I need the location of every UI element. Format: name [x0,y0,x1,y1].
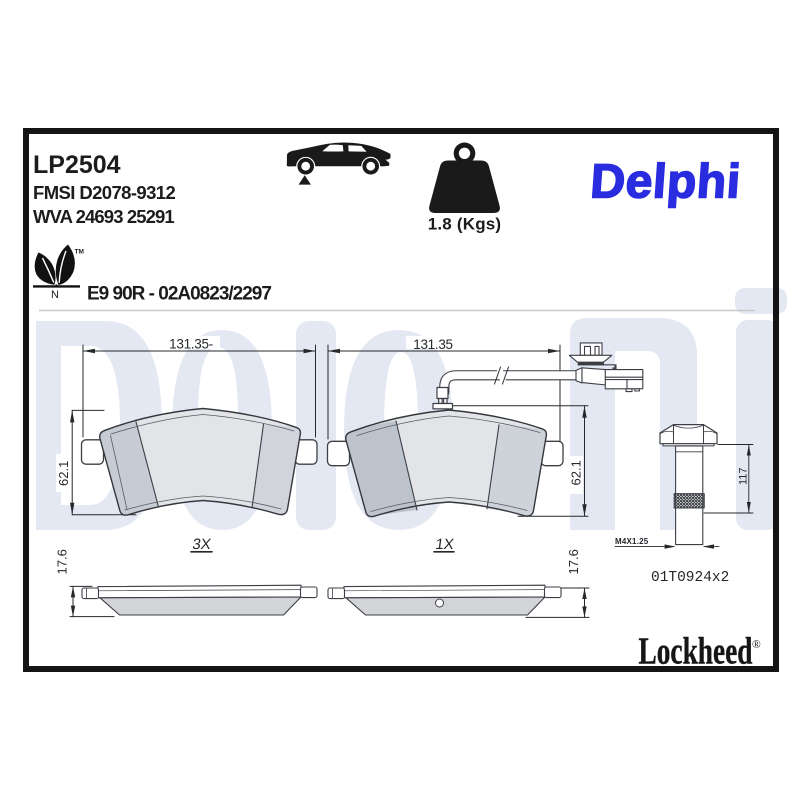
svg-text:3X: 3X [191,536,212,553]
svg-text:62.1: 62.1 [569,460,584,485]
svg-text:®: ® [752,639,761,651]
svg-text:1X: 1X [434,536,455,553]
svg-text:17.6: 17.6 [566,549,581,574]
svg-text:LP2504: LP2504 [33,151,121,179]
svg-text:M4X1.25: M4X1.25 [615,537,649,546]
svg-text:1.8 (Kgs): 1.8 (Kgs) [428,215,502,234]
svg-text:131.35: 131.35 [413,337,453,352]
svg-text:N: N [51,289,59,301]
svg-text:FMSI D2078-9312: FMSI D2078-9312 [33,182,175,203]
svg-text:E9 90R - 02A0823/2297: E9 90R - 02A0823/2297 [87,284,271,305]
svg-text:WVA 24693 25291: WVA 24693 25291 [33,206,174,227]
svg-text:17.6: 17.6 [55,549,70,574]
svg-text:117: 117 [738,467,750,485]
svg-text:Lockheed: Lockheed [639,630,753,672]
svg-text:TM: TM [75,249,84,256]
svg-text:62.1: 62.1 [56,461,71,486]
svg-text:Delphi: Delphi [589,156,743,209]
svg-text:131.35-: 131.35- [169,337,213,352]
svg-text:01T0924x2: 01T0924x2 [651,570,729,586]
